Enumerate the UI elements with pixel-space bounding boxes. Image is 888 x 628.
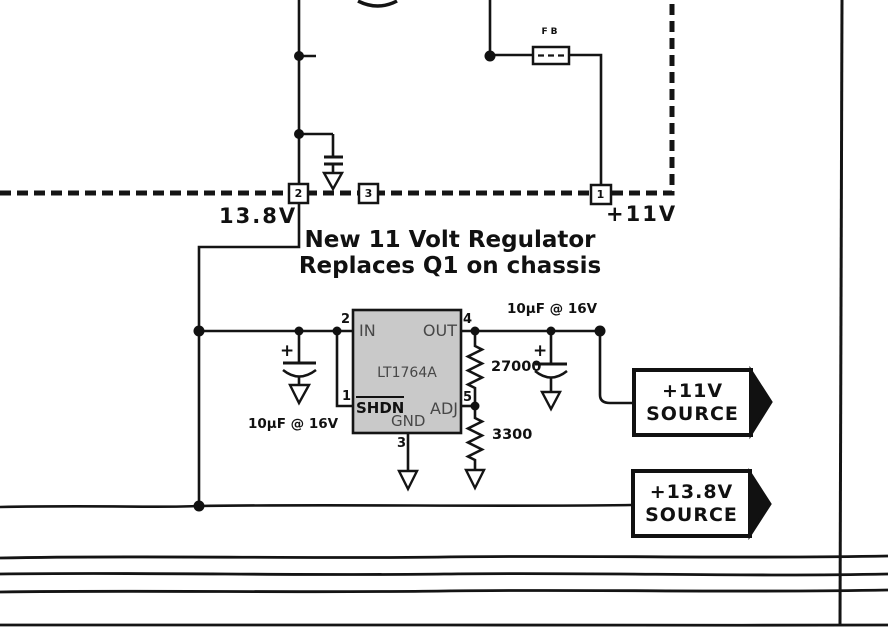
junction-dot bbox=[333, 327, 342, 336]
junction-dot bbox=[194, 501, 205, 512]
wire-11v-out bbox=[600, 331, 632, 403]
junction-dot bbox=[295, 327, 304, 336]
top-partial-symbol bbox=[358, 1, 397, 6]
pin-number-4: 4 bbox=[463, 312, 472, 327]
output-cap-value: 10µF @ 16V bbox=[507, 301, 597, 317]
net-label-11v: +11V bbox=[606, 202, 677, 226]
resistor-value-3300: 3300 bbox=[492, 427, 532, 443]
ic-pin-label-in: IN bbox=[359, 321, 376, 340]
resistor-symbol-3300 bbox=[468, 406, 482, 470]
ground-symbol bbox=[542, 392, 560, 409]
ic-pin-label-out: OUT bbox=[419, 321, 457, 340]
ferrite-bead-label: FB bbox=[533, 27, 569, 37]
ground-symbol bbox=[290, 385, 309, 403]
junction-dot bbox=[294, 129, 304, 139]
source-arrow-11v bbox=[751, 371, 771, 434]
pin-number-2: 2 bbox=[341, 312, 350, 327]
wire-top-cap-branch bbox=[299, 134, 333, 157]
bus-line bbox=[0, 590, 888, 592]
wire-138v-bus bbox=[0, 505, 631, 507]
source-138v-line1: +13.8V bbox=[650, 481, 734, 504]
bus-line bbox=[0, 573, 888, 575]
ground-symbol bbox=[399, 471, 417, 489]
connector-2-number: 2 bbox=[289, 184, 308, 203]
resistor-value-27000: 27000 bbox=[491, 359, 541, 375]
junction-dot bbox=[471, 327, 480, 336]
junction-dot bbox=[547, 327, 556, 336]
input-cap-plus-sign: + bbox=[280, 341, 294, 361]
schematic-drawing bbox=[0, 0, 888, 628]
source-11v-line2: SOURCE bbox=[646, 403, 739, 426]
schematic-canvas: 13.8V +11V New 11 Volt Regulator Replace… bbox=[0, 0, 888, 628]
net-label-138v: 13.8V bbox=[219, 204, 297, 228]
source-flag-138v: +13.8V SOURCE bbox=[631, 469, 752, 538]
border-line-vertical bbox=[840, 0, 842, 625]
source-flag-11v: +11V SOURCE bbox=[632, 368, 753, 437]
source-138v-line2: SOURCE bbox=[645, 504, 738, 527]
junction-dot bbox=[595, 326, 606, 337]
ic-pin-label-adj: ADJ bbox=[424, 399, 458, 418]
ic-part-number: LT1764A bbox=[353, 365, 461, 381]
note-line-2: Replaces Q1 on chassis bbox=[270, 253, 630, 279]
bus-line bbox=[0, 625, 888, 626]
wire-fb-to-conn1 bbox=[569, 55, 601, 185]
junction-dot bbox=[485, 51, 496, 62]
ground-symbol bbox=[466, 470, 484, 488]
junction-dot bbox=[194, 326, 205, 337]
pin-number-3: 3 bbox=[397, 436, 406, 451]
pin-number-1: 1 bbox=[342, 389, 351, 404]
source-arrow-138v bbox=[750, 473, 770, 535]
ic-pin-label-gnd: GND bbox=[391, 412, 425, 430]
junction-dot bbox=[294, 51, 304, 61]
connector-1-number: 1 bbox=[591, 185, 610, 204]
capacitor-curved-plate bbox=[283, 370, 316, 377]
connector-3-number: 3 bbox=[359, 184, 378, 203]
source-11v-line1: +11V bbox=[662, 380, 723, 403]
ground-symbol bbox=[324, 173, 342, 189]
bus-line bbox=[0, 556, 888, 558]
output-cap-plus-sign: + bbox=[533, 341, 547, 361]
pin-number-5: 5 bbox=[463, 390, 472, 405]
note-line-1: New 11 Volt Regulator bbox=[270, 227, 630, 253]
input-cap-value: 10µF @ 16V bbox=[248, 416, 338, 432]
